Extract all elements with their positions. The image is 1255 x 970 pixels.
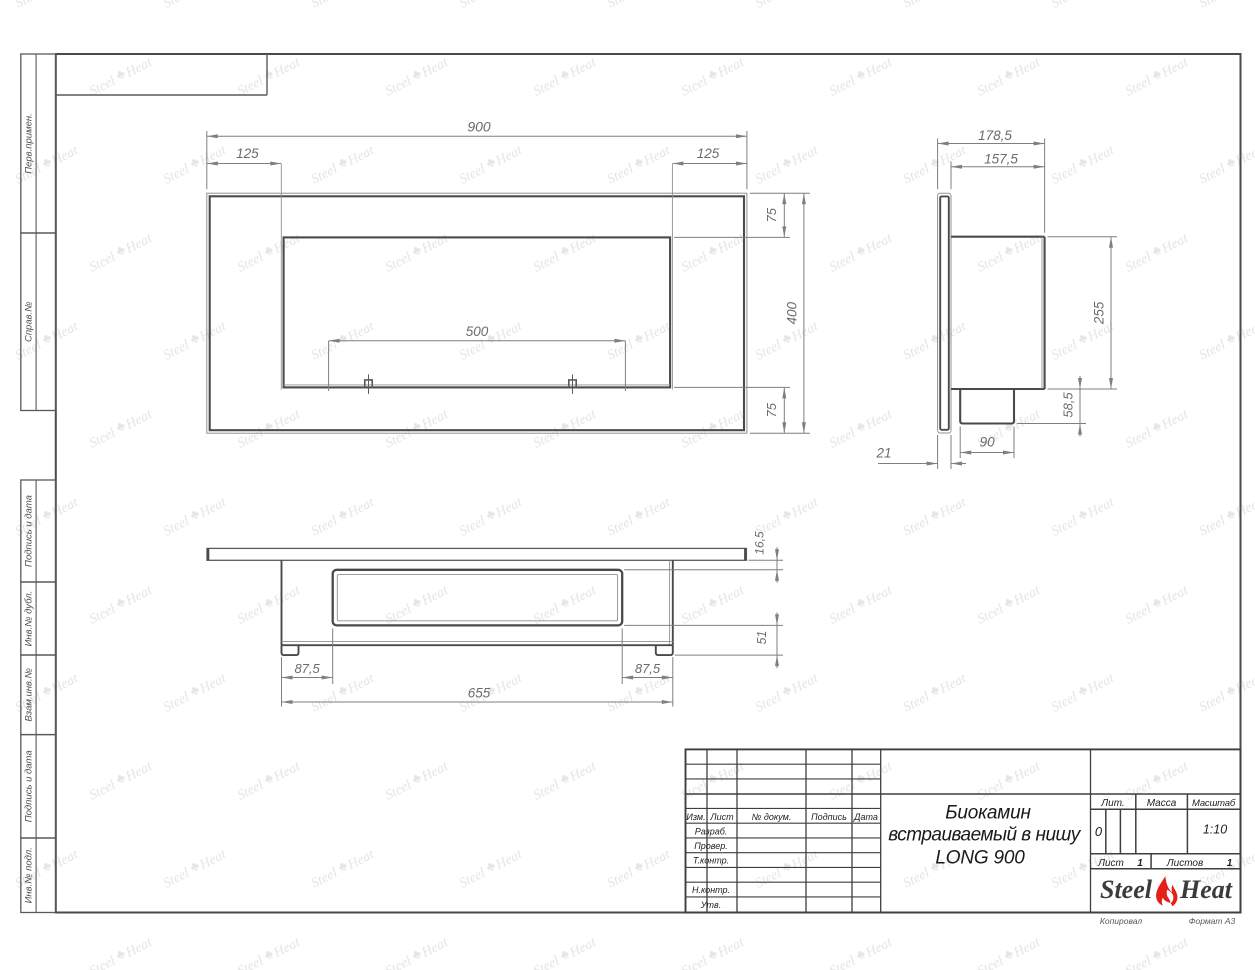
svg-text:Подпись: Подпись: [811, 812, 847, 822]
svg-text:Лист: Лист: [1097, 858, 1124, 869]
svg-text:Биокамин: Биокамин: [945, 803, 1031, 824]
svg-text:255: 255: [1092, 301, 1107, 325]
svg-text:Копировал: Копировал: [1100, 916, 1142, 926]
svg-text:125: 125: [236, 146, 259, 161]
svg-text:Лит.: Лит.: [1100, 798, 1124, 809]
svg-text:Справ.№: Справ.№: [24, 301, 35, 342]
svg-text:Дата: Дата: [853, 812, 878, 822]
svg-text:Формат А3: Формат А3: [1189, 916, 1236, 926]
svg-text:Перв.примен.: Перв.примен.: [24, 113, 35, 174]
svg-text:51: 51: [755, 631, 769, 645]
svg-text:LONG 900: LONG 900: [935, 848, 1025, 869]
svg-text:Steel: Steel: [1100, 875, 1153, 904]
svg-text:900: 900: [467, 118, 491, 134]
svg-text:Масса: Масса: [1147, 798, 1177, 809]
svg-text:58,5: 58,5: [1061, 392, 1076, 418]
svg-text:Изм.: Изм.: [686, 812, 705, 822]
svg-text:Подпись и дата: Подпись и дата: [24, 750, 35, 822]
svg-text:Н.контр.: Н.контр.: [692, 885, 730, 895]
svg-text:Heat: Heat: [1179, 875, 1233, 904]
svg-text:90: 90: [980, 435, 996, 450]
svg-text:№ докум.: № докум.: [752, 812, 792, 822]
svg-text:87,5: 87,5: [294, 661, 320, 676]
svg-text:178,5: 178,5: [978, 128, 1012, 143]
svg-text:87,5: 87,5: [635, 661, 661, 676]
svg-text:встраиваемый в нишу: встраиваемый в нишу: [888, 825, 1082, 846]
svg-text:400: 400: [785, 301, 800, 324]
svg-text:Подпись и дата: Подпись и дата: [24, 495, 35, 567]
svg-text:Провер.: Провер.: [694, 841, 728, 851]
svg-text:Утв.: Утв.: [700, 900, 721, 910]
svg-text:1: 1: [1227, 858, 1233, 869]
svg-text:Масштаб: Масштаб: [1192, 798, 1236, 809]
svg-text:0: 0: [1095, 824, 1103, 839]
svg-text:Разраб.: Разраб.: [695, 826, 728, 836]
svg-text:500: 500: [466, 324, 489, 339]
svg-text:Инв.№ подл.: Инв.№ подл.: [24, 847, 35, 903]
svg-text:Листов: Листов: [1166, 858, 1203, 869]
svg-text:75: 75: [764, 402, 779, 417]
svg-text:1: 1: [1137, 858, 1143, 869]
svg-text:Взам.инв.№: Взам.инв.№: [24, 668, 35, 721]
svg-text:Инв.№ дубл.: Инв.№ дубл.: [24, 591, 35, 647]
svg-text:21: 21: [875, 446, 891, 461]
svg-text:157,5: 157,5: [984, 151, 1018, 166]
svg-text:655: 655: [468, 686, 491, 701]
svg-text:Лист: Лист: [709, 812, 734, 822]
svg-text:75: 75: [764, 207, 779, 222]
svg-text:125: 125: [697, 146, 720, 161]
svg-text:Т.контр.: Т.контр.: [693, 856, 729, 866]
svg-text:1:10: 1:10: [1203, 823, 1227, 837]
svg-text:16,5: 16,5: [753, 531, 767, 555]
